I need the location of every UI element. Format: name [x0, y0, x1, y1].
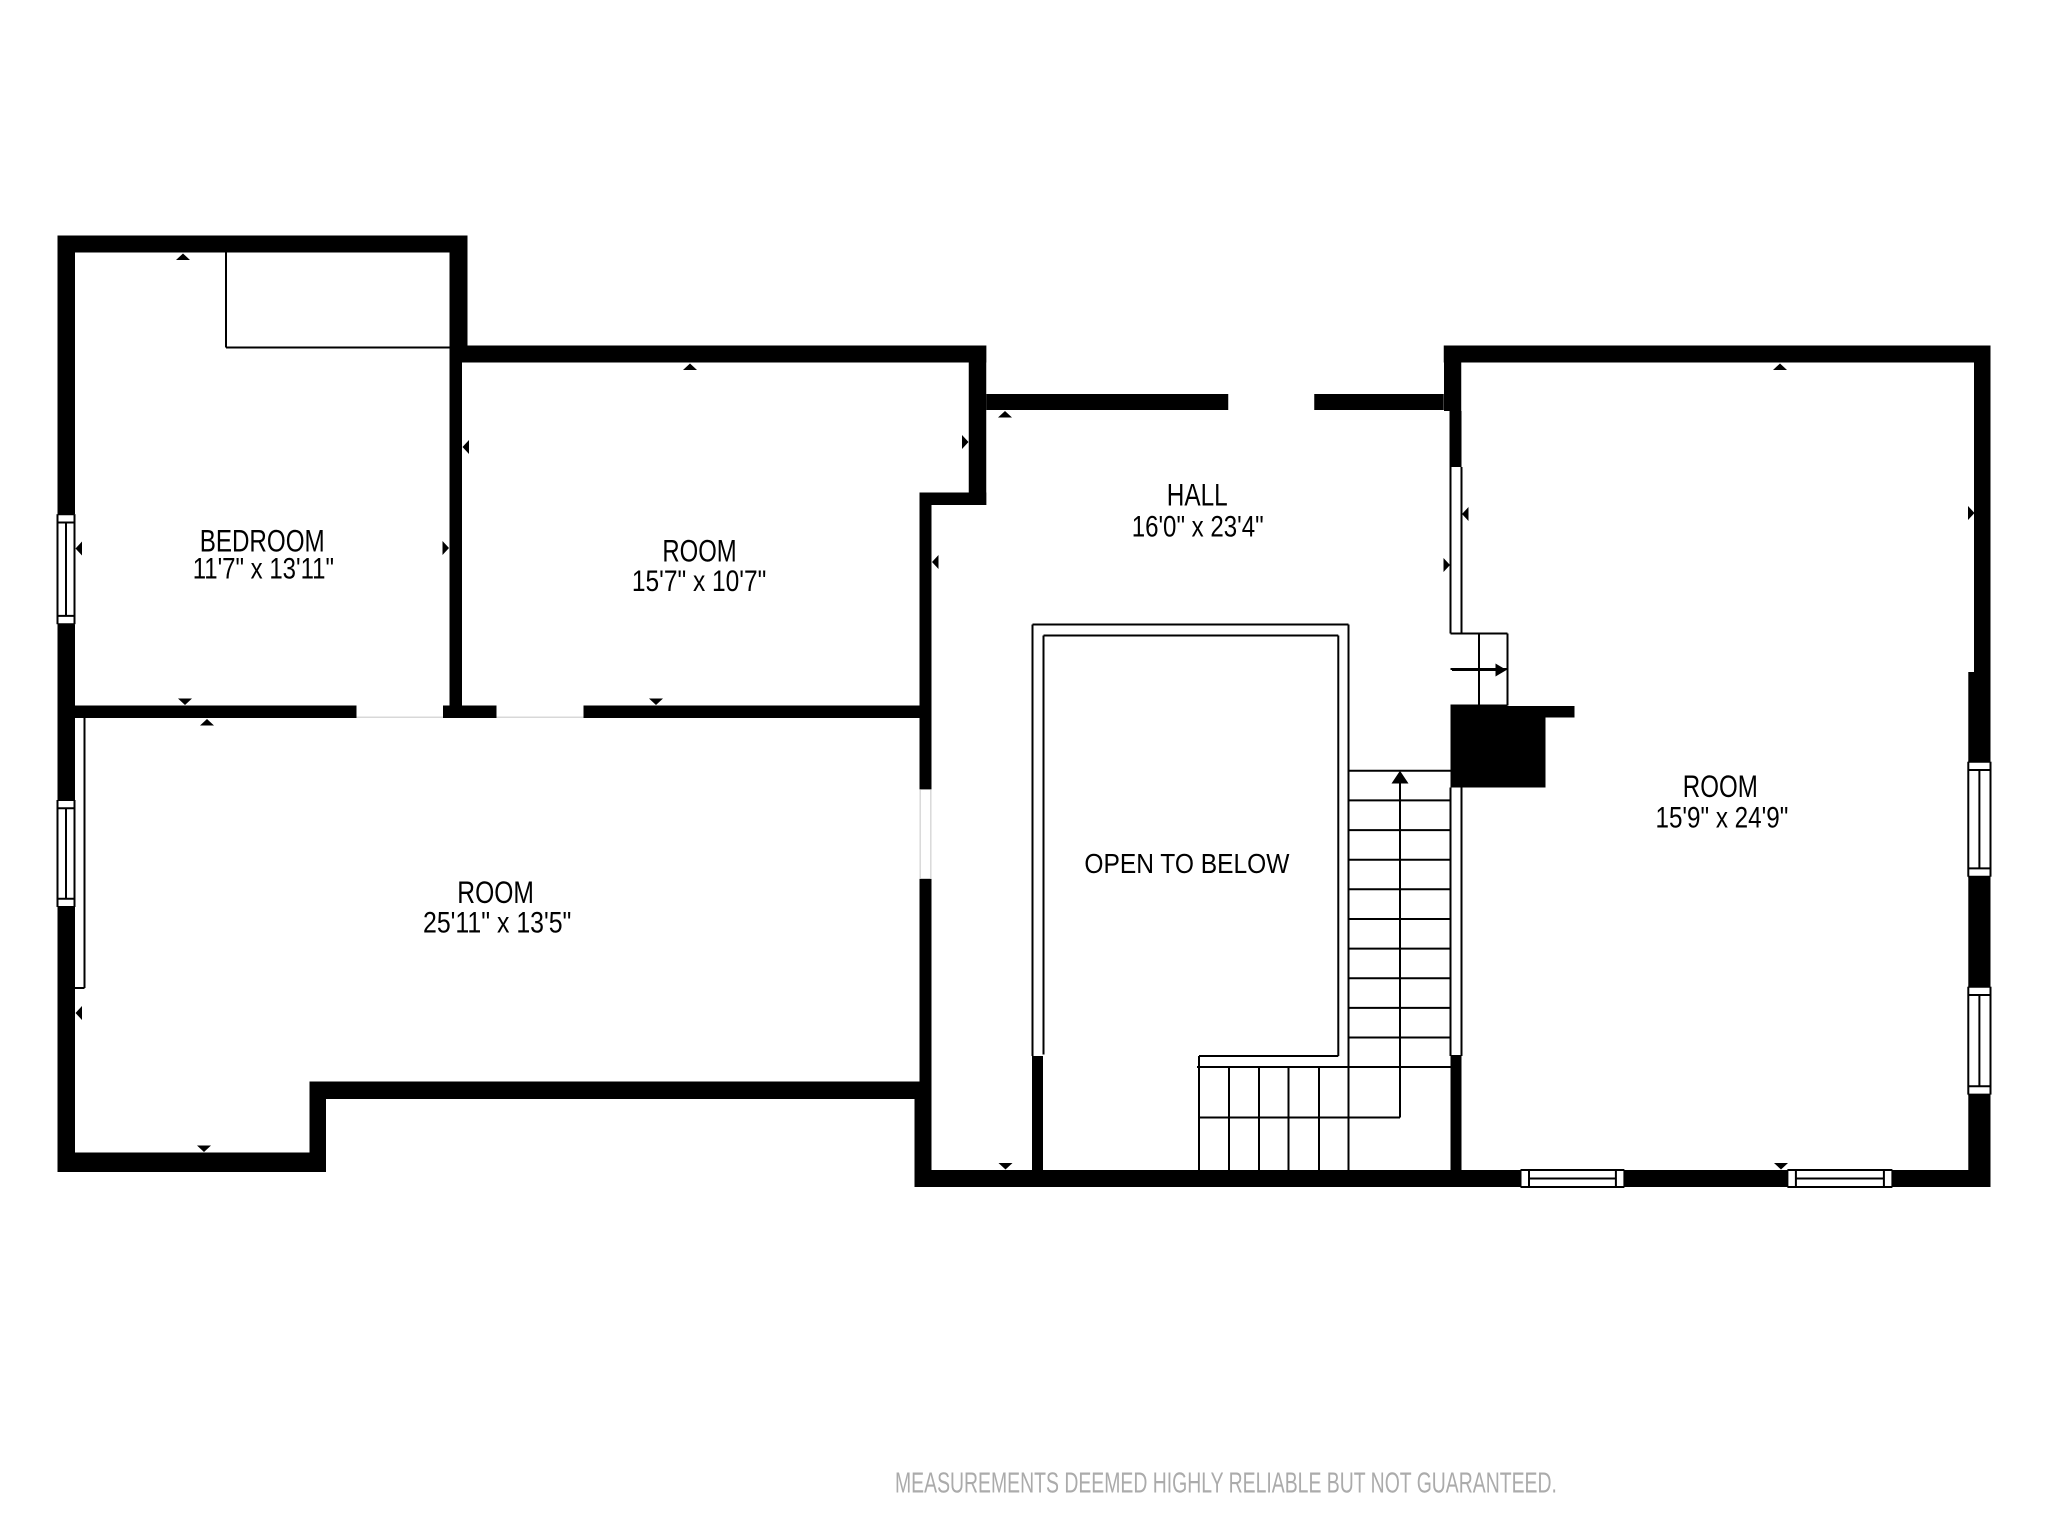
svg-text:25'11" x 13'5": 25'11" x 13'5" — [423, 907, 571, 940]
svg-text:15'7" x 10'7": 15'7" x 10'7" — [632, 565, 766, 598]
svg-text:ROOM: ROOM — [662, 532, 736, 568]
svg-text:HALL: HALL — [1167, 476, 1228, 512]
svg-text:ROOM: ROOM — [457, 874, 534, 910]
svg-text:15'9" x 24'9": 15'9" x 24'9" — [1656, 801, 1789, 834]
svg-text:ROOM: ROOM — [1683, 768, 1758, 804]
svg-text:11'7" x 13'11": 11'7" x 13'11" — [193, 553, 334, 586]
svg-text:MEASUREMENTS DEEMED HIGHLY REL: MEASUREMENTS DEEMED HIGHLY RELIABLE BUT … — [895, 1468, 1557, 1500]
svg-text:OPEN TO BELOW: OPEN TO BELOW — [1084, 847, 1289, 879]
svg-text:16'0" x 23'4": 16'0" x 23'4" — [1132, 511, 1264, 544]
